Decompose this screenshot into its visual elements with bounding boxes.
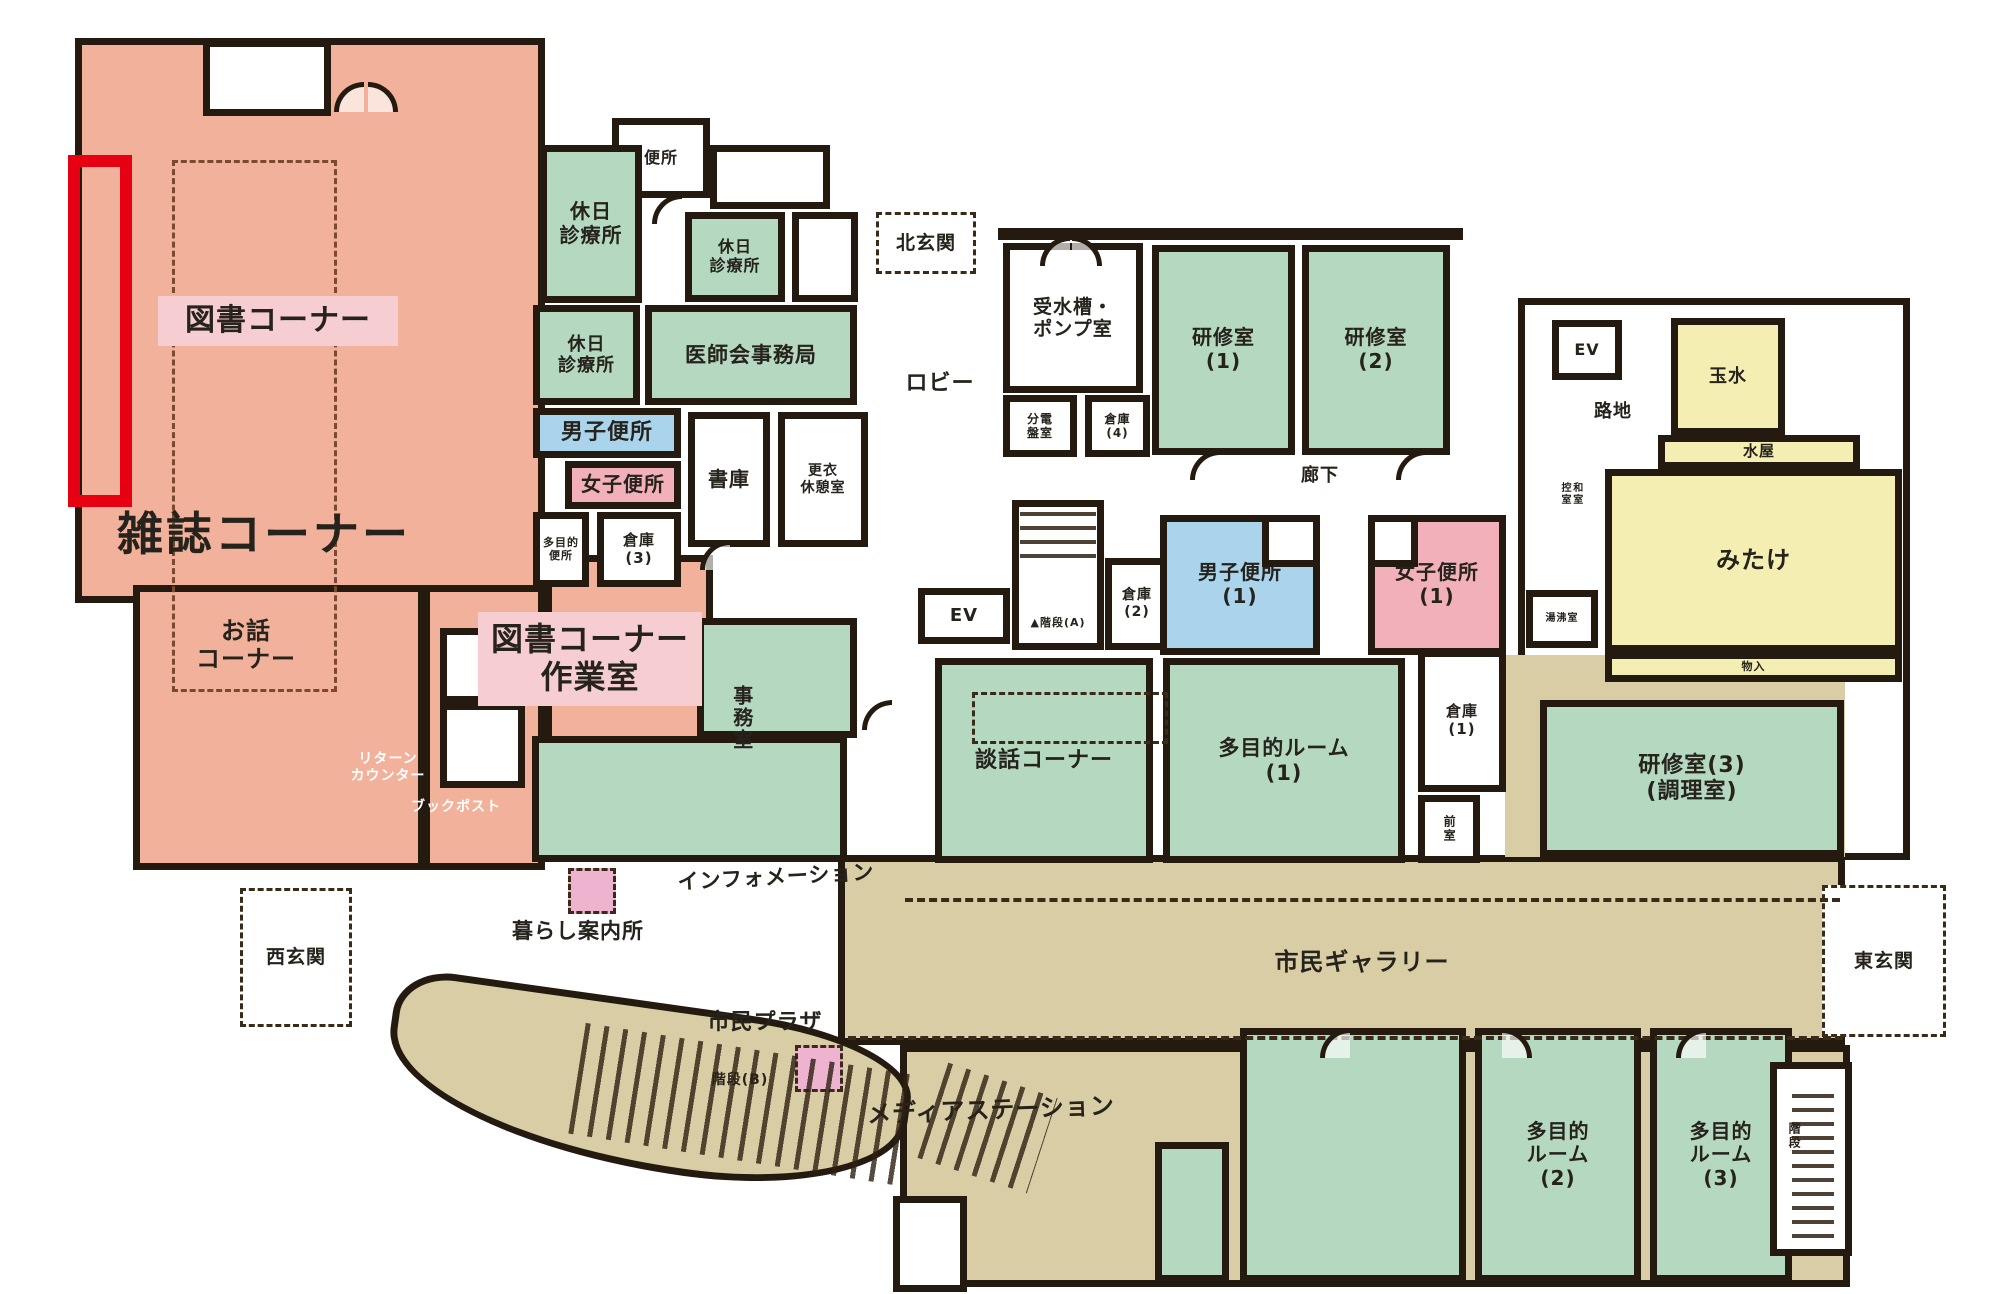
room-storage-1: 倉庫 (1) (1418, 650, 1506, 792)
marker-pink-square-2 (795, 1045, 843, 1092)
label-return-counter: リターン カウンター (322, 738, 454, 798)
room-multipurpose-2: 多目的 ルーム (2) (1475, 1028, 1641, 1282)
room-mens-toilet-west: 男子便所 (533, 408, 681, 458)
room-medical-association-office: 医師会事務局 (645, 305, 857, 405)
label-office: 事務室 (720, 650, 762, 785)
room-east-entrance: 東玄関 (1822, 885, 1946, 1037)
label-stairs-se: 階段 (1778, 1100, 1810, 1172)
room-west-entrance: 西玄関 (240, 888, 352, 1027)
label-civic-gallery: 市民ギャラリー (1258, 946, 1466, 978)
room-multipurpose-1: 多目的ルーム (1) (1163, 658, 1405, 863)
label-corridor: 廊下 (1282, 462, 1358, 490)
room-multipurpose-toilet: 多目的 便所 (533, 512, 589, 587)
room-mitake: みたけ (1605, 469, 1902, 652)
room-training-3: 研修室(3) (調理室) (1540, 700, 1844, 857)
room-mizuya: 水屋 (1658, 435, 1860, 469)
room-white-a (710, 145, 830, 209)
label-kurashi-guide: 暮らし案内所 (488, 916, 668, 946)
label-civic-plaza: 市民プラザ (694, 1008, 836, 1038)
room-holiday-clinic-2: 休日 診療所 (685, 212, 785, 302)
room-green-small-south (1155, 1142, 1229, 1282)
room-north-notch (203, 40, 331, 116)
label-alley: 路地 (1575, 398, 1651, 426)
room-water-tank-pump: 受水槽・ ポンプ室 (1003, 243, 1143, 393)
room-storage-closet: 物入 (1605, 652, 1902, 682)
room-stack-room: 書庫 (688, 412, 770, 547)
room-white-b (792, 212, 858, 302)
room-distribution-board: 分電 盤室 (1003, 395, 1077, 457)
room-storage-4: 倉庫 (4) (1085, 395, 1150, 457)
label-stairs-a: ▲階段(A) (1012, 612, 1104, 634)
room-changing-rest-room: 更衣 休憩室 (778, 412, 868, 547)
room-north-entrance: 北玄関 (876, 212, 976, 274)
room-ev-east: EV (1552, 320, 1622, 380)
room-training-1: 研修室 (1) (1152, 245, 1295, 455)
label-washitsu-anteroom: 和室 控室 (1548, 445, 1592, 543)
zone-bookshelf-dashed (172, 160, 337, 692)
room-training-2: 研修室 (2) (1302, 245, 1450, 455)
room-anteroom: 前室 (1418, 795, 1480, 863)
room-water-heating: 湯沸室 (1526, 590, 1598, 648)
marker-pink-square-1 (568, 868, 616, 914)
label-magazine-corner: 雑誌コーナー (90, 502, 438, 566)
room-storage-3: 倉庫 (3) (597, 512, 681, 587)
room-conversation-corner: 談話コーナー (935, 658, 1153, 863)
label-chip-workroom: 図書コーナー 作業室 (478, 612, 702, 706)
floor-plan: 便所休日 診療所休日 診療所休日 診療所医師会事務局男子便所女子便所書庫更衣 休… (0, 0, 2000, 1294)
room-womens-toilet-west: 女子便所 (565, 461, 681, 509)
notch-mens-toilet (1262, 515, 1320, 567)
label-lobby: ロビー (885, 368, 995, 400)
floor-plan-rooms-layer: 便所休日 診療所休日 診療所休日 診療所医師会事務局男子便所女子便所書庫更衣 休… (0, 0, 2000, 1294)
marker-red-highlight (68, 155, 132, 507)
room-holiday-clinic-1: 休日 診療所 (540, 145, 642, 303)
room-holiday-clinic-3: 休日 診療所 (533, 305, 640, 405)
room-tamamizu: 玉水 (1671, 318, 1785, 435)
room-office-lower (532, 736, 847, 862)
label-stairs-b: 階段(B) (692, 1068, 788, 1092)
notch-womens-toilet (1368, 515, 1418, 567)
label-chip-library-corner: 図書コーナー (158, 296, 398, 346)
room-ev-west: EV (918, 588, 1010, 644)
room-green-large-south (1240, 1028, 1466, 1282)
room-south-small (893, 1196, 967, 1292)
label-book-post: ブックポスト (385, 794, 527, 820)
